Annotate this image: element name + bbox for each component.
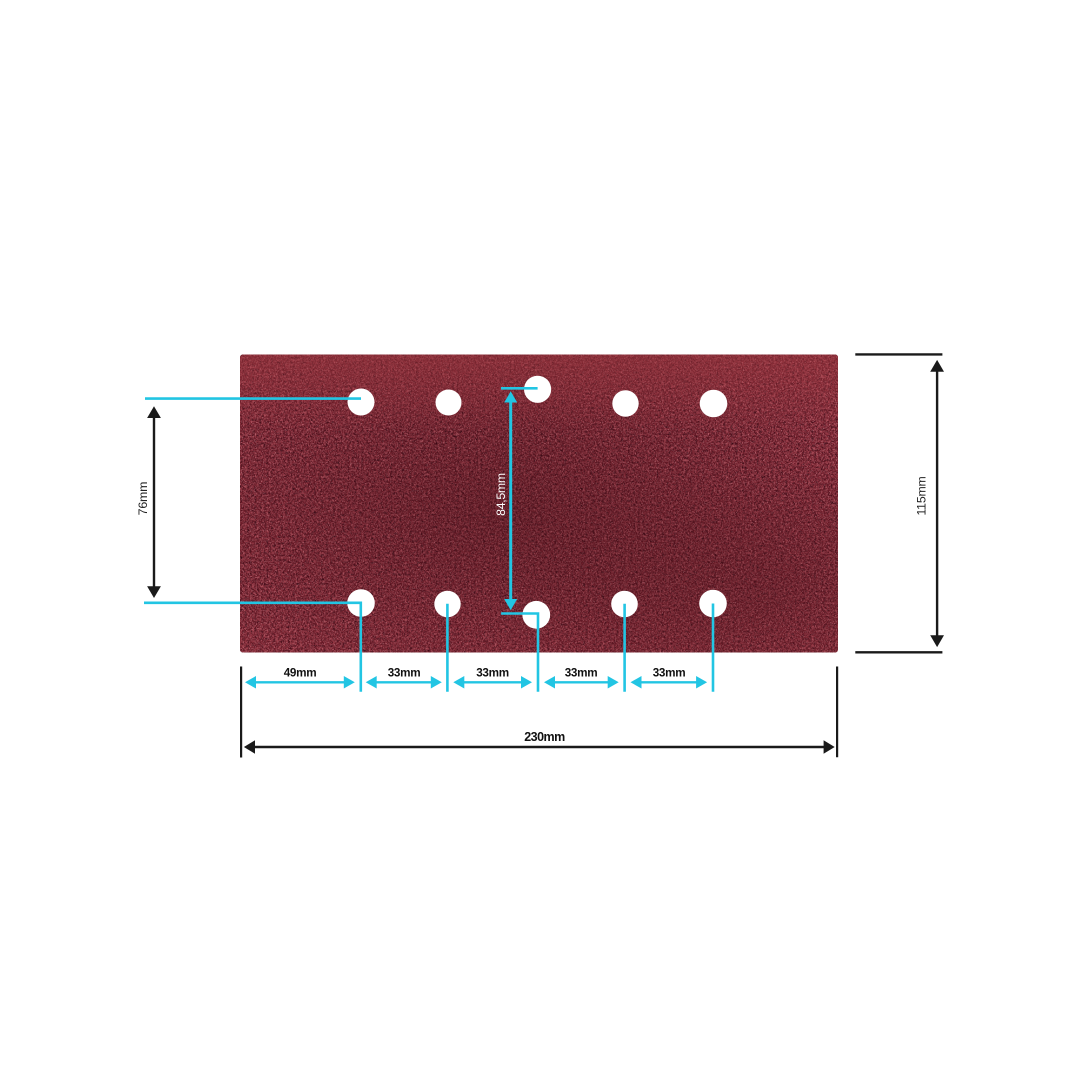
svg-text:230mm: 230mm [524, 730, 565, 744]
svg-text:33mm: 33mm [388, 667, 421, 680]
svg-text:49mm: 49mm [284, 667, 317, 680]
svg-text:33mm: 33mm [565, 667, 598, 680]
svg-text:84,5mm: 84,5mm [494, 473, 508, 516]
svg-text:76mm: 76mm [136, 482, 150, 516]
svg-text:33mm: 33mm [653, 667, 686, 680]
svg-text:115mm: 115mm [914, 476, 928, 515]
svg-text:33mm: 33mm [476, 667, 509, 680]
